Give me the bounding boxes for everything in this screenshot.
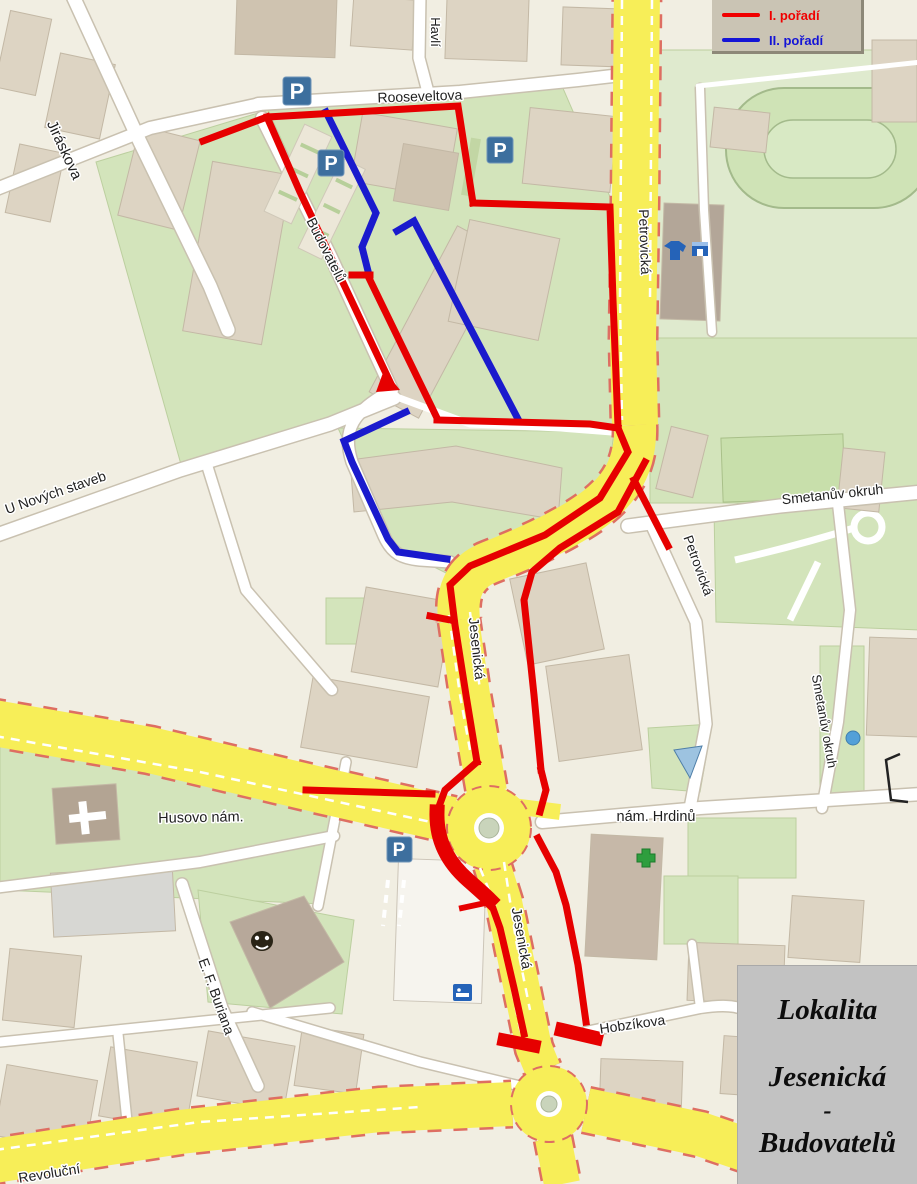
parking-icon: P <box>487 137 513 163</box>
map-screenshot: P P P P <box>0 0 917 1184</box>
parking-icon: P <box>318 150 344 176</box>
theater-mask-icon <box>251 931 273 951</box>
roundabout-north <box>447 786 531 870</box>
roundabout-south <box>511 1066 587 1142</box>
pharmacy-building <box>585 834 663 960</box>
svg-text:P: P <box>493 140 506 162</box>
street-label-nam-hrdinu: nám. Hrdinů <box>617 809 696 825</box>
street-label-petrovicka-top: Petrovická <box>636 209 654 275</box>
title-line-budovatelu: Budovatelů <box>759 1127 896 1160</box>
legend-label-secondary: II. pořadí <box>769 34 823 47</box>
svg-text:P: P <box>324 153 337 175</box>
legend-swatch-red <box>722 13 760 17</box>
route-end-bar-west <box>504 1040 534 1046</box>
title-line-jesenicka: Jesenická <box>769 1061 887 1094</box>
street-label-rooseveltova: Rooseveltova <box>377 87 463 106</box>
title-line-dash: - <box>824 1098 832 1125</box>
route-end-bar-east <box>562 1030 596 1038</box>
legend-row-secondary: II. pořadí <box>722 31 823 49</box>
street-label-husovo-nam: Husovo nám. <box>158 809 244 826</box>
street-label-havlickova: Havlí <box>428 17 443 47</box>
shop-icon <box>692 242 708 256</box>
pond <box>846 731 860 745</box>
stadium-infield <box>764 120 896 178</box>
parking-icon: P <box>387 837 412 862</box>
parking-icon: P <box>283 77 311 105</box>
svg-text:P: P <box>393 840 406 861</box>
legend-swatch-blue <box>722 38 760 42</box>
legend-label-primary: I. pořadí <box>769 9 820 22</box>
legend-box: I. pořadí II. pořadí <box>712 0 864 54</box>
title-box: Lokalita Jesenická - Budovatelů <box>737 965 917 1184</box>
title-line-lokalita: Lokalita <box>778 994 878 1027</box>
hotel-icon <box>453 984 472 1001</box>
legend-row-primary: I. pořadí <box>722 6 820 24</box>
svg-text:P: P <box>290 79 305 104</box>
